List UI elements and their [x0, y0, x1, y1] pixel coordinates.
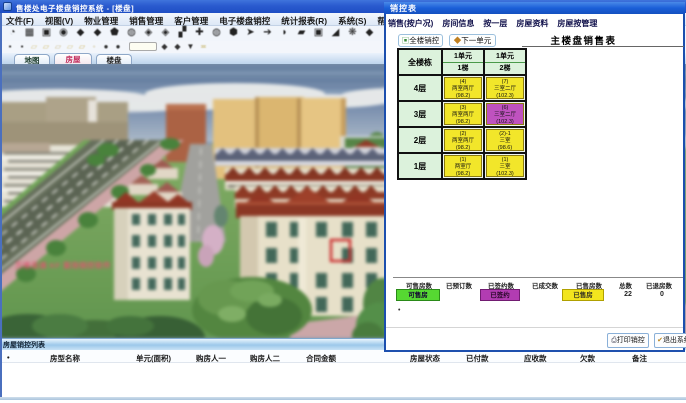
svg-text:万维易通 KF 案场销控软件: 万维易通 KF 案场销控软件	[14, 260, 111, 270]
